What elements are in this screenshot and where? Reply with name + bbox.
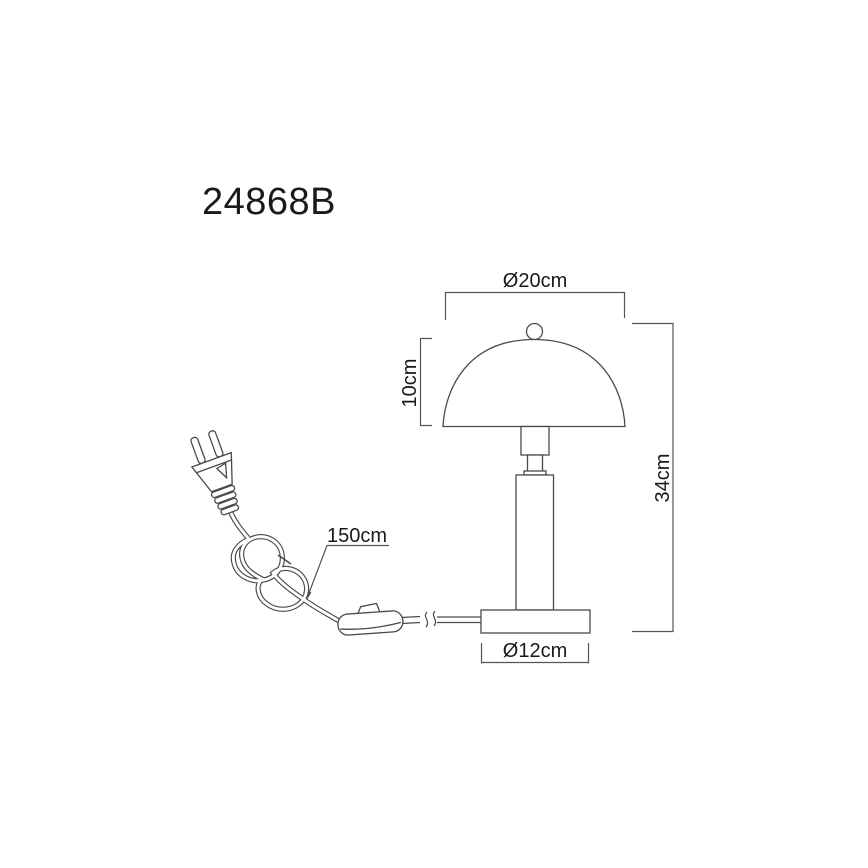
switch-body [337,610,403,635]
technical-drawing-canvas: 24868B Ø20cm 10cm 34cm Ø12cm 150cm [0,0,868,868]
base-diameter-label: Ø12cm [445,639,625,663]
leader-line-cable-length [306,546,390,603]
cable-to-base [402,611,481,627]
shade-diameter-label: Ø20cm [445,269,625,293]
shade-height-label: 10cm [398,333,422,433]
table-lamp [443,324,625,634]
line-art [0,0,868,868]
inline-switch [337,602,404,636]
power-plug [183,427,251,519]
plug-prong-right [208,430,224,458]
power-cable [231,512,340,621]
product-code: 24868B [202,183,336,221]
total-height-label: 34cm [651,428,675,528]
cable-break-mark [425,611,435,627]
lamp-shade [443,340,625,427]
lamp-neck [528,455,543,472]
cable-length-label: 150cm [327,524,387,548]
finial-knob [527,324,543,340]
dimension-line-shade-height [421,339,433,426]
lamp-base [481,610,590,633]
lamp-column [516,475,554,610]
dimension-line-shade-diameter [446,293,625,321]
plug-prong-left [190,436,206,464]
lamp-socket [521,427,549,456]
